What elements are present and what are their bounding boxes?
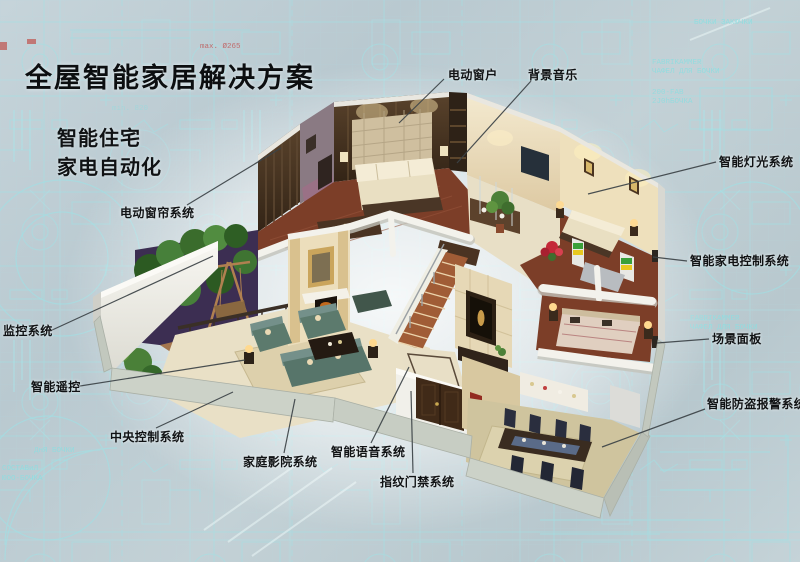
subtitle-smart-residence: 智能住宅: [57, 122, 141, 151]
bp-note: 200-FAB: [652, 89, 684, 97]
callout-appliance-control: 智能家电控制系统: [690, 252, 789, 269]
page-title: 全屋智能家居解决方案: [25, 56, 315, 95]
bp-note: 2J0hБОЧКА: [652, 98, 693, 106]
nightstand: [644, 328, 653, 339]
callout-home-theater: 家庭影院系统: [243, 453, 317, 470]
nightstand: [549, 310, 558, 321]
callout-voice-system: 智能语音系统: [331, 443, 405, 460]
callout-fingerprint-access: 指纹门禁系统: [380, 473, 454, 490]
right-end-wall: [658, 183, 665, 342]
door-handle: [435, 402, 439, 406]
callout-burglar-alarm: 智能防盗报警系统: [707, 395, 800, 412]
callout-smart-remote: 智能遥控: [31, 378, 81, 395]
appliance-control-panel: [652, 250, 658, 262]
bp-note: ДнЯ БОЧКИ: [34, 447, 75, 455]
callout-scene-panel: 场景面板: [712, 330, 762, 347]
bp-note: max. Ø265: [200, 42, 241, 51]
bp-note: min. 820: [112, 105, 149, 113]
smart-home-poster: БОЧКИ ЗАКЮЧКИ FABRIKAMMER ЧАФЕЛ ДЛЯ БОЧК…: [0, 0, 800, 562]
bedside-lamp: [440, 146, 448, 156]
third-bedroom: [536, 296, 655, 370]
bp-note: FABRIKAMMER: [652, 59, 702, 67]
callout-electric-window: 电动窗户: [448, 66, 498, 83]
callout-smart-lighting: 智能灯光系统: [719, 153, 793, 170]
table-lamp: [245, 345, 253, 353]
shelf-column: [449, 92, 467, 172]
artwork-figure: [478, 310, 485, 326]
bp-note: ЧАФЕЛ ДЛЯ БОЧКИ: [652, 68, 720, 76]
callout-central-control: 中央控制系统: [110, 428, 184, 445]
side-table: [244, 352, 254, 364]
bp-note: БОЧКИ ЗАКЮЧКИ: [694, 19, 753, 27]
callout-background-music: 背景音乐: [528, 66, 578, 83]
bedside-lamp: [340, 152, 348, 162]
bp-note: ЮОО-БОЧКА: [2, 475, 43, 483]
callout-monitoring-system: 监控系统: [3, 322, 53, 339]
nightstand: [556, 208, 564, 218]
side-table: [368, 346, 378, 358]
subtitle-appliance-automation: 家电自动化: [57, 151, 162, 180]
callout-curtain-system: 电动窗帘系统: [120, 204, 194, 221]
table-lamp: [369, 339, 377, 347]
bp-note: СОСТАВиЛ: [2, 465, 39, 473]
nightstand: [630, 226, 638, 236]
